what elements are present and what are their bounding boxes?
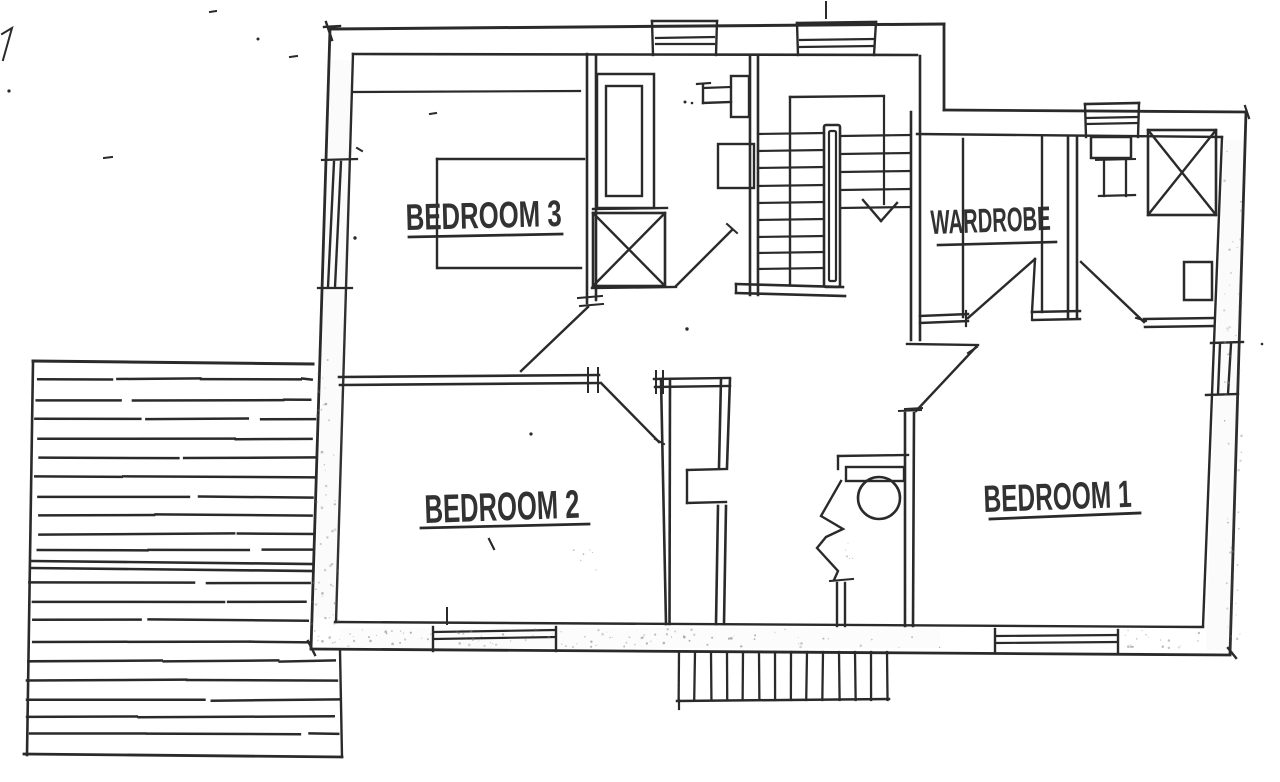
svg-text:WARDROBE: WARDROBE [930, 200, 1051, 242]
svg-text:BEDROOM 3: BEDROOM 3 [405, 193, 562, 238]
